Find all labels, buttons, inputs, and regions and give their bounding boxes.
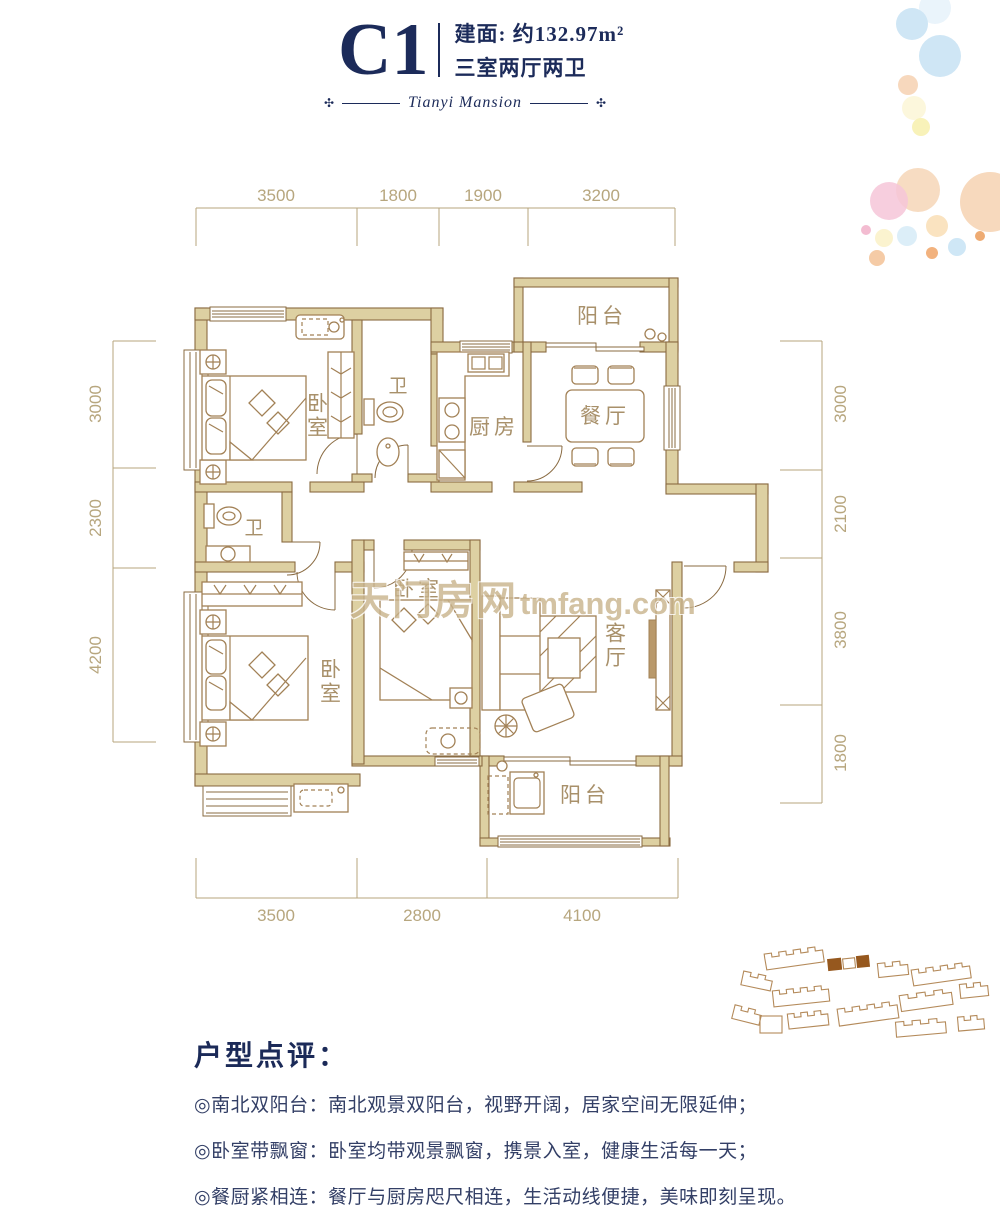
- bedroom-master-furniture: [200, 315, 354, 484]
- dim-left-1: 2300: [86, 499, 105, 537]
- room-label-bath-top: 卫: [388, 376, 411, 397]
- building-shape: [877, 960, 908, 977]
- room-label-living: 客厅: [603, 622, 627, 670]
- decorative-circles: [861, 0, 1000, 266]
- dim-top-0: 3500: [257, 186, 295, 205]
- brand-line-left: [342, 103, 400, 104]
- bathroom-mid-furniture: [204, 504, 250, 562]
- unit-layout: 三室两厅两卫: [454, 52, 624, 82]
- review-item: ◎餐厨紧相连：餐厅与厨房咫尺相连，生活动线便捷，美味即刻呈现。: [194, 1182, 796, 1209]
- brand-line-right: [530, 103, 588, 104]
- building-shape: [787, 1010, 829, 1029]
- dim-left-2: 4200: [86, 636, 105, 674]
- site-highlighted-building: [828, 955, 870, 970]
- floorplan-page: C1 建面: 约132.97m² 三室两厅两卫 ✣ Tianyi Mansion…: [0, 0, 1000, 1222]
- brand-name: Tianyi Mansion: [408, 94, 522, 112]
- room-label-kitchen: 厨房: [469, 416, 519, 439]
- dim-right-1: 2100: [831, 495, 850, 533]
- building-shape: [772, 985, 829, 1007]
- building-shape: [957, 1015, 984, 1031]
- dim-right-3: 1800: [831, 734, 850, 772]
- building-shape: [760, 1016, 782, 1033]
- header: C1 建面: 约132.97m² 三室两厅两卫: [338, 18, 624, 82]
- room-label-bedroom-mid: 卧室: [393, 578, 443, 601]
- building-shape: [895, 1018, 946, 1037]
- balcony-south-furniture: [488, 761, 544, 814]
- unit-area: 建面: 约132.97m²: [454, 18, 624, 48]
- dim-right-2: 3800: [831, 611, 850, 649]
- dim-top-1: 1800: [379, 186, 417, 205]
- building-shape: [741, 971, 773, 991]
- building-shape: [732, 1005, 763, 1025]
- building-shape: [959, 982, 988, 999]
- building-shape: [764, 946, 824, 970]
- dim-right-0: 3000: [831, 385, 850, 423]
- living-furniture: [482, 590, 670, 737]
- room-label-bedroom-left: 卧室: [318, 658, 341, 706]
- building-shape: [911, 962, 971, 986]
- review-item: ◎卧室带飘窗：卧室均带观景飘窗，携景入室，健康生活每一天；: [194, 1136, 796, 1163]
- dim-bottom-2: 4100: [563, 906, 601, 925]
- brand-row: ✣ Tianyi Mansion ✣: [330, 94, 600, 112]
- bathroom-top-furniture: [364, 399, 403, 466]
- room-label-bath-mid: 卫: [244, 518, 267, 539]
- ornament-icon: ✣: [596, 97, 606, 109]
- unit-code: C1: [338, 18, 428, 82]
- room-label-balcony-south: 阳台: [560, 784, 610, 807]
- building-shape: [837, 1001, 899, 1026]
- dim-left-0: 3000: [86, 385, 105, 423]
- room-label-bedroom-master: 卧室: [305, 392, 328, 440]
- room-label-balcony-north: 阳台: [577, 305, 627, 328]
- site-map: [732, 946, 989, 1037]
- dim-top-2: 1900: [464, 186, 502, 205]
- header-text: 建面: 约132.97m² 三室两厅两卫: [454, 18, 624, 82]
- review-heading: 户型点评：: [194, 1034, 796, 1074]
- building-shape: [899, 988, 953, 1011]
- room-label-dining: 餐厅: [580, 405, 630, 428]
- ornament-icon: ✣: [324, 97, 334, 109]
- header-divider: [438, 23, 440, 77]
- dim-bottom-0: 3500: [257, 906, 295, 925]
- review-item: ◎南北双阳台：南北观景双阳台，视野开阔，居家空间无限延伸；: [194, 1090, 796, 1117]
- dim-bottom-1: 2800: [403, 906, 441, 925]
- dim-top-3: 3200: [582, 186, 620, 205]
- review-section: 户型点评： ◎南北双阳台：南北观景双阳台，视野开阔，居家空间无限延伸； ◎卧室带…: [194, 1034, 796, 1222]
